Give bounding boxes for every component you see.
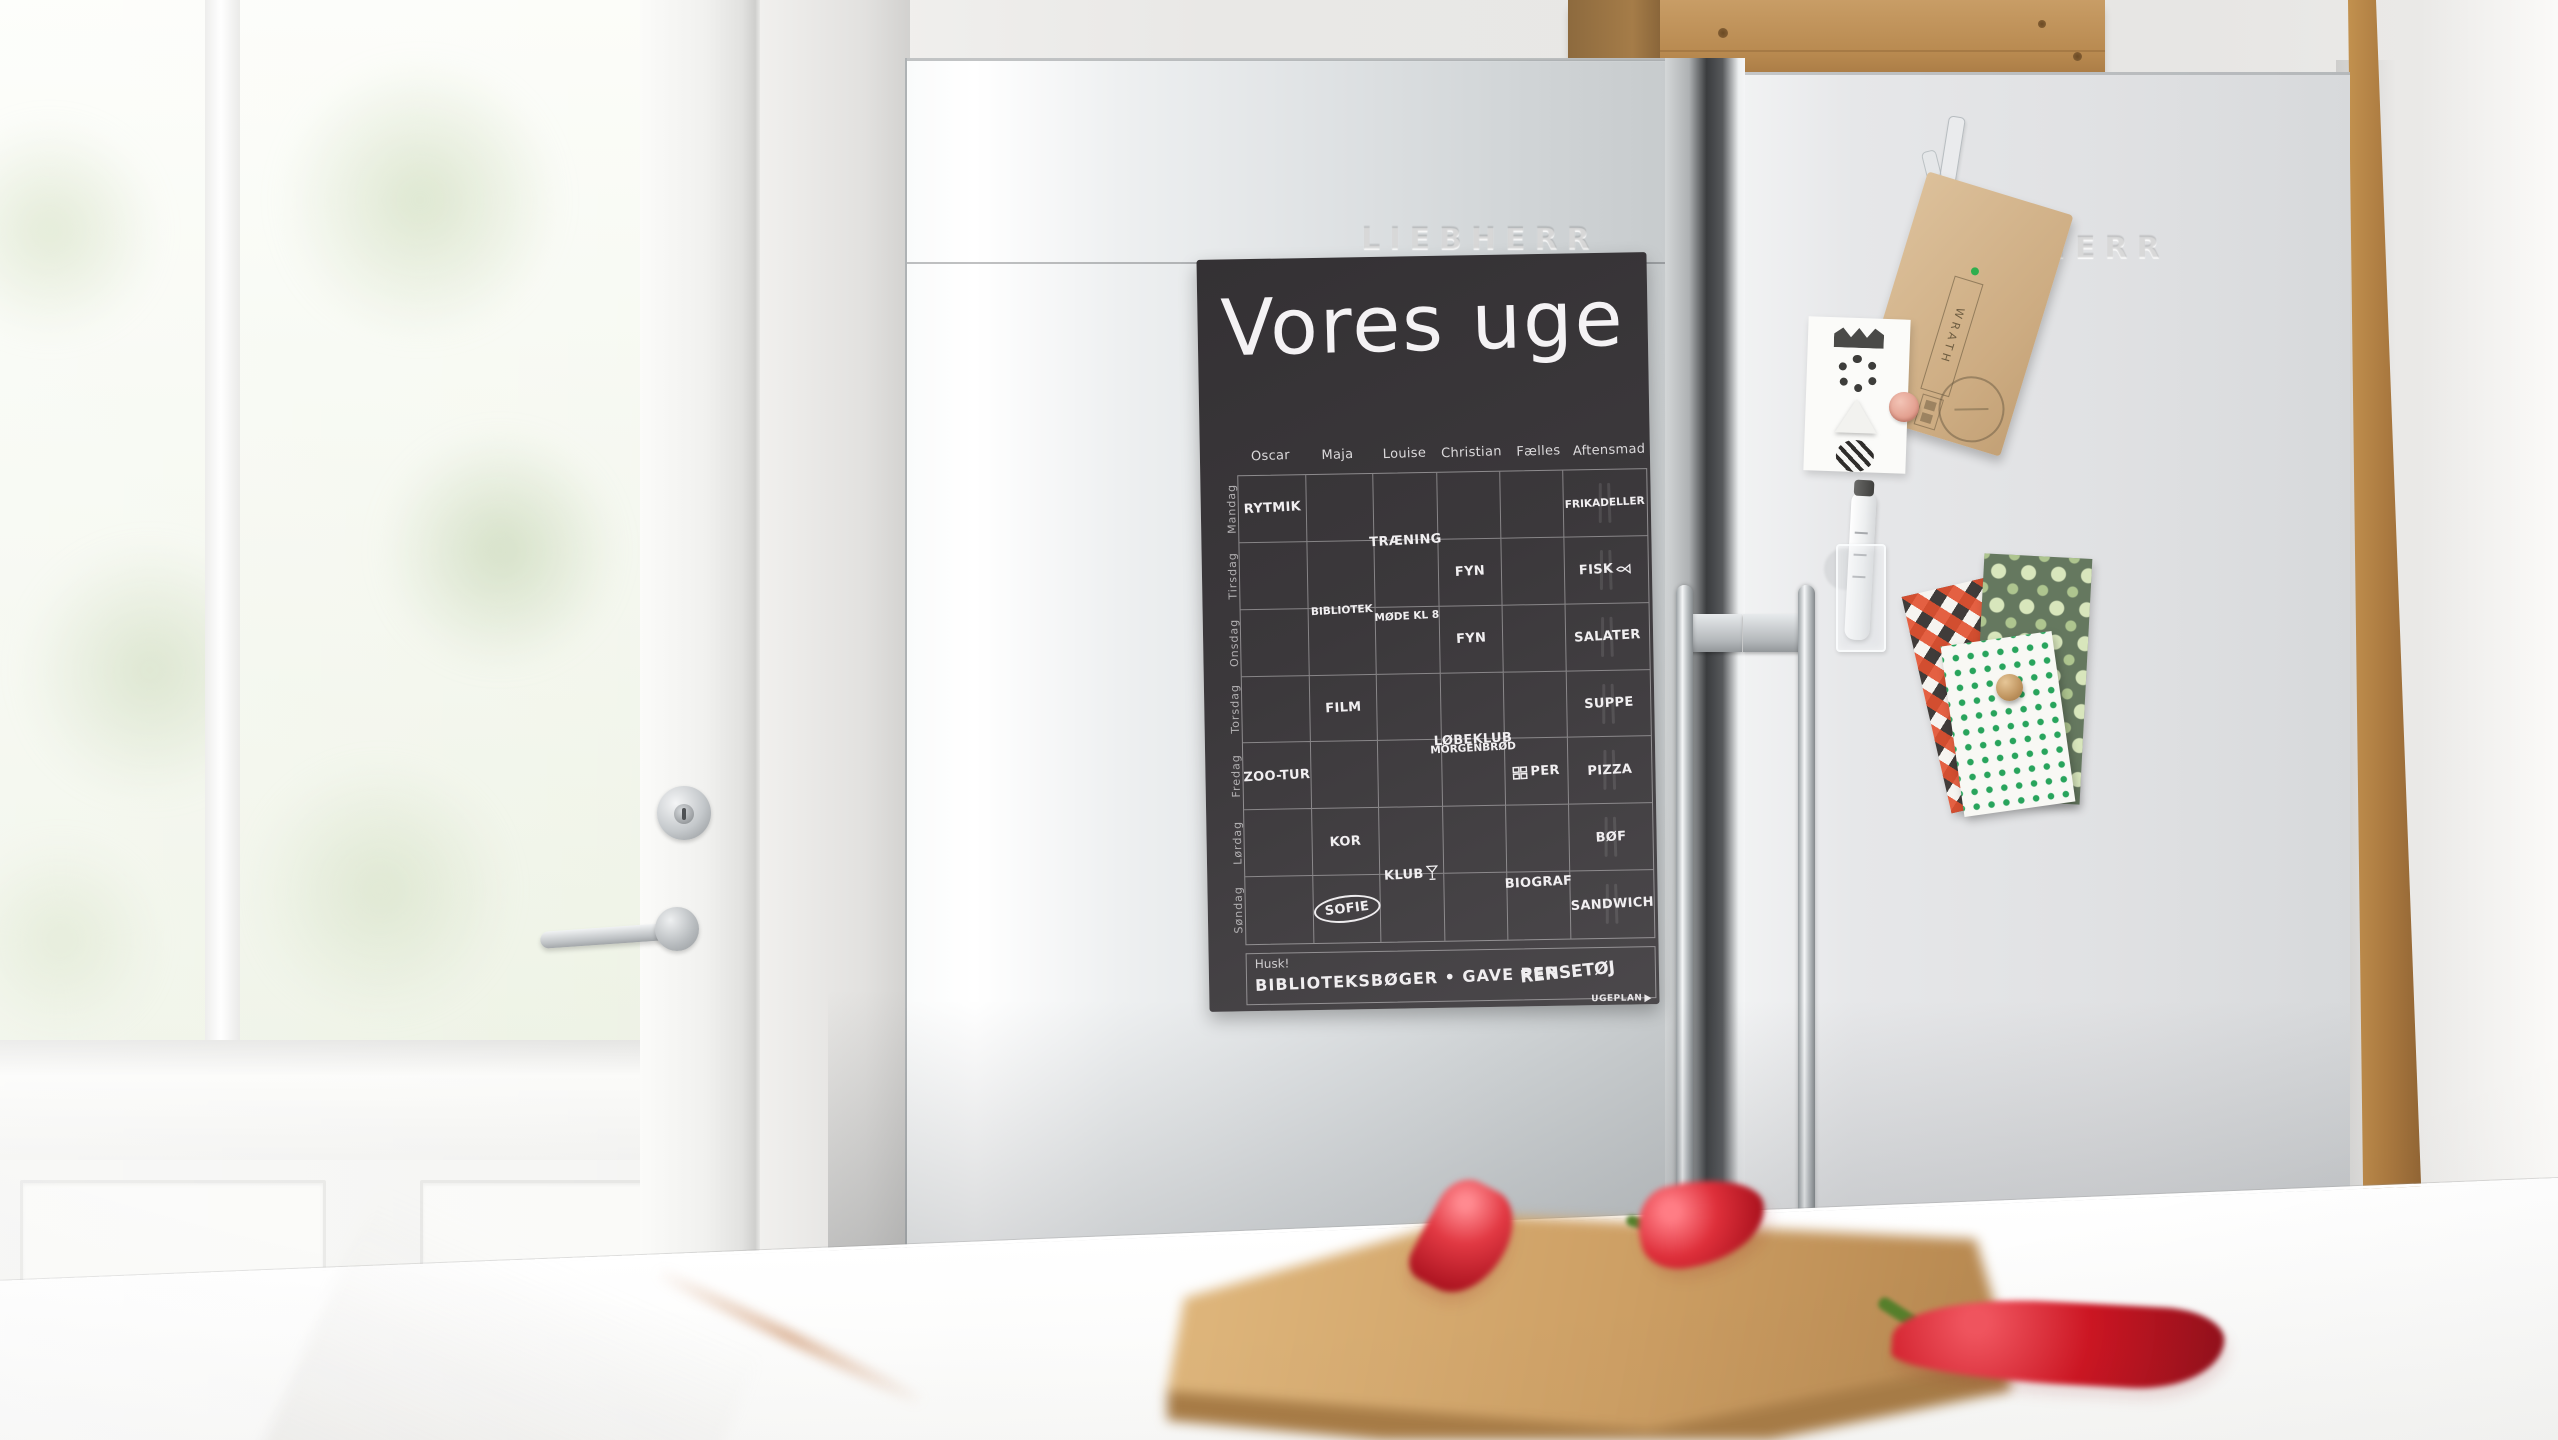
board-cell bbox=[1375, 540, 1439, 608]
board-cell bbox=[1506, 805, 1570, 873]
board-entry: KOR bbox=[1330, 833, 1362, 850]
green-dot-sticker bbox=[1970, 266, 1980, 276]
weekly-planner-board: Vores uge OscarMajaLouiseChristianFælles… bbox=[1196, 252, 1659, 1012]
board-entry: FILM bbox=[1325, 700, 1362, 717]
door-handle-rosette bbox=[655, 907, 699, 951]
column-header: Aftensmad bbox=[1572, 442, 1645, 460]
wood-knot bbox=[2038, 20, 2046, 28]
cutting-board bbox=[1150, 1195, 2010, 1440]
board-column-headers: OscarMajaLouiseChristianFællesAftensmad bbox=[1237, 442, 1645, 464]
column-header: Christian bbox=[1438, 444, 1506, 461]
board-cell bbox=[1239, 542, 1308, 610]
board-cell bbox=[1311, 741, 1380, 809]
striped-circle-shape bbox=[1835, 440, 1874, 473]
bokeh-blob bbox=[0, 840, 160, 1040]
door-stile bbox=[640, 0, 760, 1440]
bokeh-blob bbox=[0, 120, 160, 340]
fish-doodle-icon bbox=[1616, 563, 1634, 574]
board-entry: MØDE KL 8 bbox=[1376, 608, 1439, 623]
board-entry: ZOO-TUR bbox=[1243, 767, 1310, 785]
board-entry: PIZZA bbox=[1587, 762, 1633, 779]
board-cell: TRÆNING bbox=[1374, 473, 1438, 541]
board-entry: FYN bbox=[1455, 631, 1486, 648]
board-cell: SUPPE bbox=[1567, 670, 1651, 738]
board-cell bbox=[1502, 604, 1566, 672]
board-cell bbox=[1503, 671, 1567, 739]
envelope-label: WRATH bbox=[1937, 306, 1967, 367]
column-header: Fælles bbox=[1505, 443, 1573, 460]
board-title: Vores uge bbox=[1197, 276, 1649, 374]
crown-shape bbox=[1834, 327, 1885, 349]
board-cell: KOR bbox=[1312, 808, 1381, 876]
board-cell bbox=[1244, 809, 1313, 877]
board-entry: SUPPE bbox=[1584, 695, 1634, 713]
board-cell: MORGENBRØD bbox=[1441, 739, 1505, 807]
gift-grid-icon bbox=[1512, 765, 1528, 780]
right-wall-glow bbox=[2420, 0, 2558, 1260]
board-cell: FYN bbox=[1439, 605, 1503, 673]
handle-bracket bbox=[1743, 614, 1801, 652]
note-side-text: RENSETØJ bbox=[1519, 958, 1616, 988]
board-cell bbox=[1381, 874, 1445, 942]
ring-shape bbox=[1836, 354, 1879, 393]
board-entry: PER bbox=[1512, 763, 1560, 780]
bokeh-blob bbox=[380, 430, 620, 670]
board-cell bbox=[1443, 806, 1507, 874]
bokeh-blob bbox=[250, 760, 510, 1020]
crate-plank-seam bbox=[1660, 50, 2105, 52]
pen-cap bbox=[1854, 480, 1875, 497]
board-entry: SOFIE bbox=[1312, 892, 1381, 927]
board-cell: FYN bbox=[1438, 539, 1502, 607]
board-cell bbox=[1437, 472, 1501, 540]
kitchen-scene: LIEBHERR LIEBHERR Vores uge OscarMajaLou… bbox=[0, 0, 2558, 1440]
board-entry: FRIKADELLER bbox=[1565, 495, 1645, 511]
board-cell: SALATER bbox=[1565, 603, 1649, 671]
bokeh-blob bbox=[280, 60, 560, 340]
board-cell bbox=[1444, 873, 1508, 941]
board-entry: SALATER bbox=[1574, 627, 1641, 645]
board-entry: MORGENBRØD bbox=[1441, 741, 1504, 756]
board-cell bbox=[1501, 537, 1565, 605]
note-text: BIBLIOTEKSBØGER • GAVE PER bbox=[1255, 963, 1559, 995]
board-cell bbox=[1241, 609, 1310, 677]
keyhole-icon bbox=[682, 808, 686, 820]
wood-knot bbox=[2073, 52, 2082, 61]
board-cell: BØF bbox=[1569, 803, 1653, 871]
board-cell: BIBLIOTEK bbox=[1307, 541, 1376, 609]
window-mullion bbox=[205, 0, 240, 1058]
board-cell: BIOGRAF bbox=[1507, 872, 1571, 940]
column-header: Oscar bbox=[1237, 448, 1305, 465]
board-cell bbox=[1308, 608, 1377, 676]
board-entry: BIOGRAF bbox=[1507, 874, 1570, 892]
handle-bracket bbox=[1690, 614, 1742, 652]
bokeh-blob bbox=[20, 540, 205, 800]
board-cell: FISK bbox=[1564, 536, 1648, 604]
board-cell: RYTMIK bbox=[1238, 475, 1307, 543]
board-cell bbox=[1500, 471, 1564, 539]
board-cell: PIZZA bbox=[1568, 737, 1652, 805]
board-cell: FILM bbox=[1310, 674, 1379, 742]
board-entry: SANDWICH bbox=[1570, 895, 1654, 914]
column-header: Maja bbox=[1304, 446, 1372, 463]
board-cell: LØBEKLUB bbox=[1440, 672, 1504, 740]
cocktail-glass-icon bbox=[1426, 865, 1439, 882]
board-entry: TRÆNING bbox=[1374, 532, 1437, 550]
triangle-shape bbox=[1835, 399, 1878, 434]
pink-button-magnet[interactable] bbox=[1889, 392, 1919, 422]
window-pane-right bbox=[240, 0, 640, 1058]
board-cell: KLUB bbox=[1379, 807, 1443, 875]
board-cell bbox=[1306, 474, 1375, 542]
note-label: Husk! bbox=[1255, 956, 1290, 971]
board-cell: MØDE KL 8 bbox=[1376, 607, 1440, 675]
board-entry: BØF bbox=[1595, 829, 1626, 846]
column-header: Louise bbox=[1371, 445, 1439, 462]
board-entry: FYN bbox=[1454, 564, 1485, 581]
board-entry: RYTMIK bbox=[1243, 500, 1301, 518]
wood-knot bbox=[1718, 28, 1728, 38]
acrylic-pen-holder bbox=[1836, 544, 1886, 652]
pen-label-line bbox=[1855, 532, 1868, 535]
board-cell bbox=[1245, 876, 1314, 944]
board-cell bbox=[1242, 676, 1311, 744]
door-lock[interactable] bbox=[657, 786, 711, 840]
window-pane-left bbox=[0, 0, 205, 1058]
board-entry: FISK bbox=[1578, 561, 1634, 579]
board-cell: SANDWICH bbox=[1570, 870, 1654, 938]
board-cell: FRIKADELLER bbox=[1563, 469, 1647, 537]
wooden-ball-magnet[interactable] bbox=[1996, 674, 2023, 701]
board-cell bbox=[1377, 673, 1441, 741]
board-cell: ZOO-TUR bbox=[1243, 742, 1312, 810]
board-grid: RYTMIKTRÆNINGFRIKADELLERBIBLIOTEKFYNFISK… bbox=[1237, 468, 1655, 945]
board-cell: SOFIE bbox=[1313, 875, 1382, 943]
green-dot-card bbox=[1941, 631, 2076, 817]
